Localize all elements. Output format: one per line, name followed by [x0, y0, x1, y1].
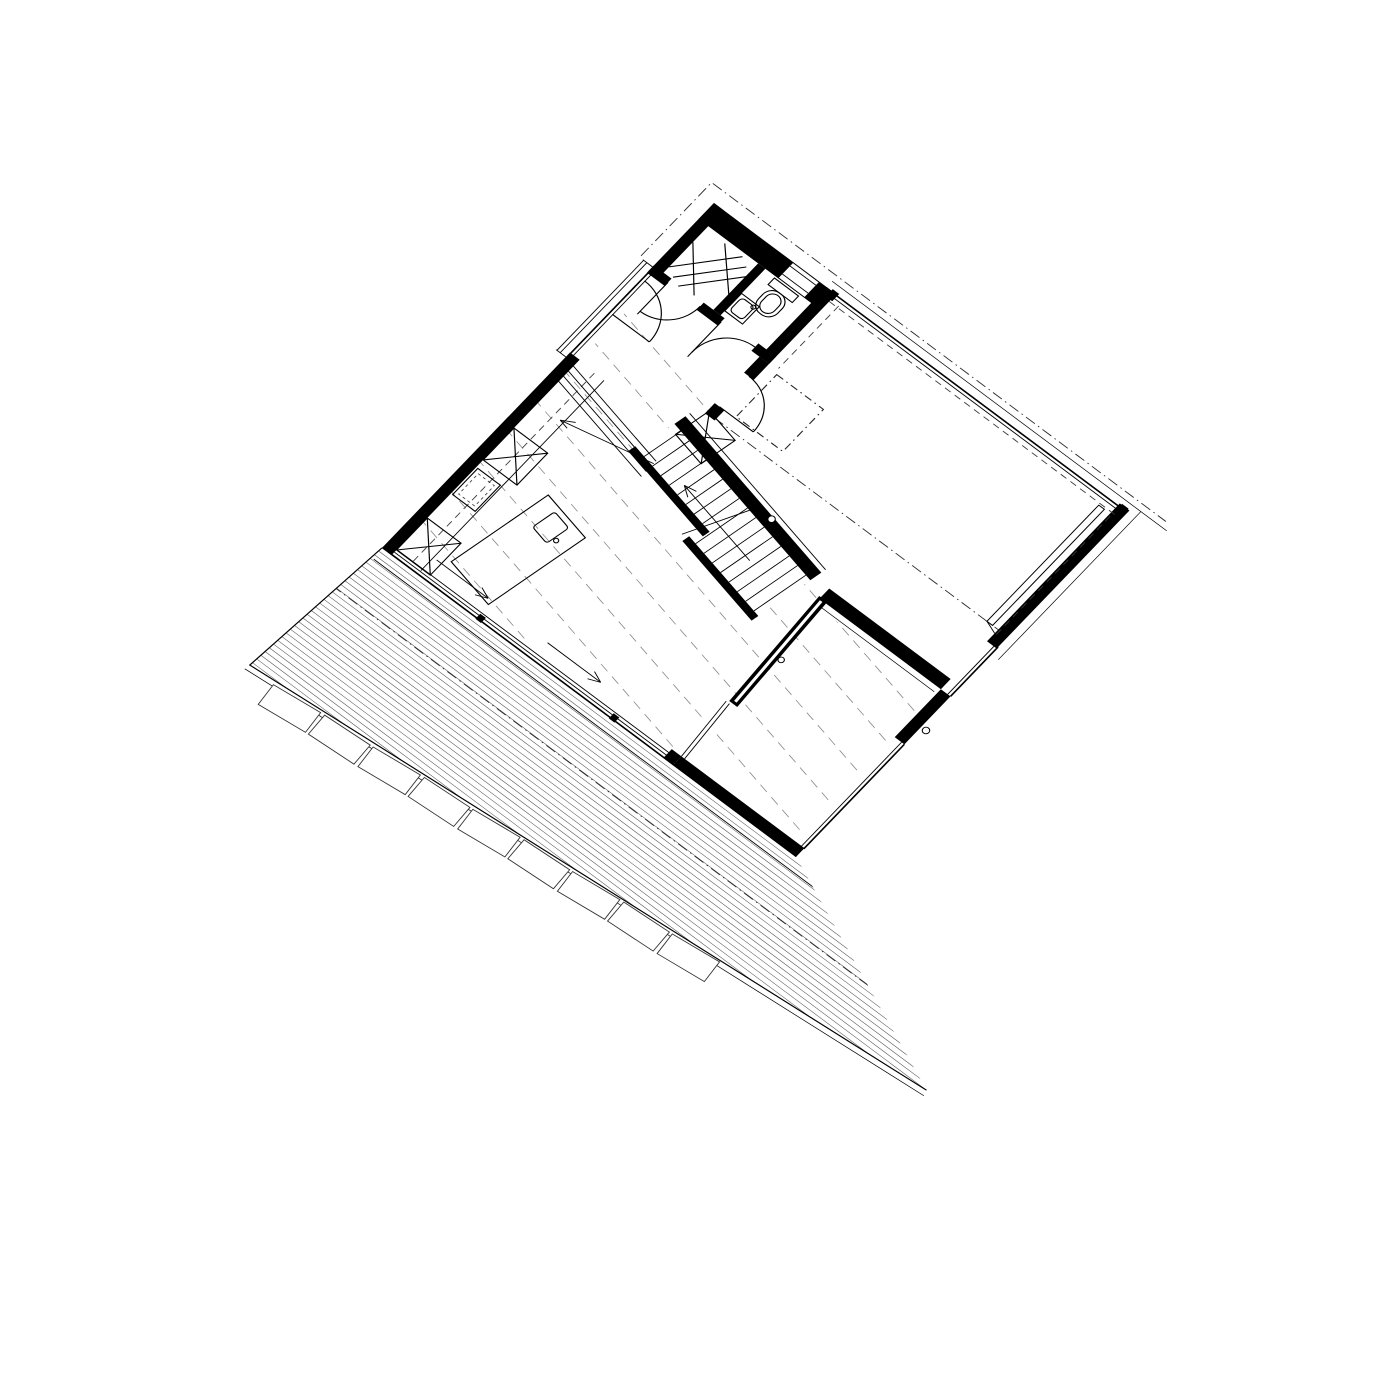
deck-board-line: [238, 611, 929, 1127]
studio-dashed-ne: [829, 301, 1115, 515]
bathroom-se-wall: [759, 287, 836, 364]
handle-circle: [921, 726, 932, 735]
deck-outline: [250, 539, 1003, 1136]
se-glass-lower-a: [801, 742, 902, 847]
floor-board-line: [181, 654, 721, 1082]
deck-board-line: [261, 587, 952, 1103]
roof-edge-line-se: [998, 512, 1141, 660]
stone-tile: [458, 809, 520, 857]
roof-edge-line-ne: [832, 281, 1166, 531]
deck-board-line: [250, 599, 941, 1115]
deck-board-line: [269, 579, 960, 1095]
stone-step-band: [256, 652, 722, 1014]
kitchen-island: [443, 481, 594, 619]
entry-door-arc: [612, 281, 681, 342]
shower-door-arc: [640, 282, 700, 335]
se-wall: [987, 503, 1129, 648]
deck-board-hatch: [215, 515, 1022, 1151]
skylight-dashed-square: [736, 375, 823, 452]
bathroom-nw-wall: [648, 203, 723, 278]
studio-door-arc: [720, 376, 783, 432]
kitchen-counter: [395, 361, 612, 576]
deck-board-line: [258, 591, 949, 1107]
living-sw-wall: [673, 756, 804, 857]
floor-board-line: [181, 654, 721, 1082]
slide-arrow: [544, 639, 604, 686]
deck-board-line: [277, 571, 968, 1087]
se-glass-upper-b: [951, 647, 999, 696]
sw-glass-a: [397, 550, 680, 761]
partition-glass-a: [677, 701, 731, 756]
rotated-plan-group: [112, 156, 1367, 1258]
island-sink: [533, 512, 569, 543]
stone-tile: [557, 872, 619, 920]
living-ne-inner-line: [818, 605, 934, 691]
deck-board-line: [265, 583, 956, 1099]
stone-tile: [258, 685, 320, 733]
se-glass-upper-a: [948, 645, 996, 694]
facade-mullions: [475, 614, 619, 723]
shower-wc-partition: [713, 263, 765, 315]
se-glass-lower-b: [804, 744, 905, 849]
ne-glass-inner: [831, 296, 1124, 514]
bathroom-ne-wall: [699, 203, 835, 309]
kitchen-nw-wall: [382, 353, 580, 555]
stone-tile: [408, 777, 470, 826]
deck-board-line: [284, 563, 975, 1079]
deck-board-line: [304, 543, 995, 1059]
parked-sliding-panel: [987, 505, 1104, 625]
deck-board-line: [296, 551, 987, 1067]
hall-landing-lines: [537, 363, 676, 476]
deck-board-line: [281, 567, 972, 1083]
stone-tile: [308, 715, 370, 764]
deck-board-line: [254, 595, 945, 1111]
floor-plan-drawing: [0, 0, 1400, 1400]
deck-board-line: [242, 607, 933, 1123]
wc-door-arc: [692, 322, 755, 378]
deck-board-line: [273, 575, 964, 1091]
deck-board-line: [300, 547, 991, 1063]
entry-glass-outer: [571, 272, 649, 353]
ne-glass-outer: [834, 294, 1127, 512]
stone-tile: [358, 747, 420, 795]
roof-overhang-dashdot-over-deck: [332, 585, 951, 1047]
floor-plan-page: [0, 0, 1400, 1400]
living-ne-wall: [819, 588, 950, 689]
partition-glass-b: [680, 704, 734, 759]
entry-canopy-lines: [556, 260, 652, 357]
